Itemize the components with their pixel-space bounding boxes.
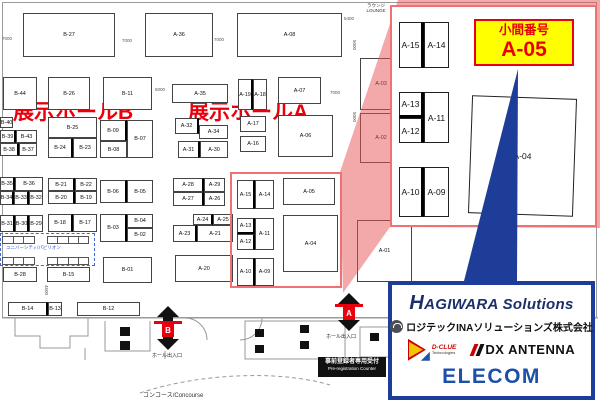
pre-registration-label-en: Pre-registration Counter bbox=[318, 366, 386, 372]
booth-a-27: A-27 bbox=[173, 192, 204, 206]
booth-label: B-34 bbox=[1, 195, 13, 201]
booth-label: A-03 bbox=[375, 81, 387, 87]
booth-label: B-04 bbox=[134, 218, 146, 224]
booth-label: B-13 bbox=[49, 306, 61, 312]
booth-b-30: B-30 bbox=[15, 215, 29, 232]
logitec-logo: ロジテックINAソリューションズ株式会社 bbox=[390, 319, 593, 334]
pavilion-mini-booth-cell bbox=[57, 237, 67, 243]
booth-label: A-28 bbox=[182, 182, 194, 188]
booth-a-34: A-34 bbox=[199, 125, 228, 139]
booth-label: A-24 bbox=[197, 217, 209, 223]
booth-a-31: A-31 bbox=[178, 141, 200, 158]
booth-b-31: B-31 bbox=[0, 215, 15, 232]
booth-label: B-22 bbox=[80, 182, 92, 188]
booth-b-12: B-12 bbox=[77, 302, 140, 316]
booth-a-20: A-20 bbox=[175, 255, 233, 282]
exhibition-floor-map: 展示ホールB 展示ホールA ラウンジ LOUNGE 事前登録者専用受付 Pre-… bbox=[0, 0, 600, 405]
booth-b-07: B-07 bbox=[127, 120, 153, 158]
pre-registration-counter: 事前登録者専用受付 Pre-registration Counter bbox=[318, 357, 386, 377]
booth-label: B-36 bbox=[23, 181, 35, 187]
entrance-b-badge: B bbox=[162, 324, 174, 337]
booth-b-23: B-23 bbox=[73, 138, 97, 158]
pavilion-mini-booth-cell bbox=[78, 258, 88, 264]
dx-antenna-logo: DX ANTENNA bbox=[472, 342, 575, 357]
booth-label: B-31 bbox=[1, 221, 13, 227]
pavilion-mini-booth-cell bbox=[68, 258, 78, 264]
booth-label: B-26 bbox=[63, 91, 75, 97]
elecom-logo: ELECOM bbox=[442, 365, 541, 389]
booth-b-38: B-38 bbox=[0, 143, 19, 156]
pavilion-mini-booths bbox=[47, 257, 89, 265]
booth-b-43: B-43 bbox=[16, 130, 37, 143]
booth-b-03: B-03 bbox=[100, 214, 127, 242]
booth-label: A-25 bbox=[217, 217, 229, 223]
dclue-logo-text: D-CLUE Technologies bbox=[432, 344, 457, 356]
booth-label: B-35 bbox=[1, 181, 13, 187]
booth-b-34: B-34 bbox=[0, 191, 14, 205]
booth-b-21: B-21 bbox=[48, 178, 75, 191]
booth-b-25: B-25 bbox=[48, 117, 97, 138]
booth-b-06: B-06 bbox=[100, 180, 127, 203]
booth-label: B-07 bbox=[134, 136, 146, 142]
booth-a-07: A-07 bbox=[278, 77, 321, 104]
booth-b-11: B-11 bbox=[103, 77, 152, 110]
dimension-label: 7000 bbox=[214, 37, 224, 42]
booth-a-26: A-26 bbox=[204, 192, 225, 206]
booth-b-17: B-17 bbox=[73, 214, 97, 232]
booth-b-33: B-33 bbox=[14, 191, 29, 205]
university-pavilion-label: ユニバーシティ/パビリオン bbox=[6, 245, 61, 251]
booth-b-22: B-22 bbox=[75, 178, 97, 191]
booth-b-04: B-04 bbox=[127, 214, 153, 228]
booth-label: A-02 bbox=[375, 135, 387, 141]
pavilion-mini-booth-cell bbox=[57, 258, 67, 264]
dimension-label: 5000 bbox=[352, 40, 357, 50]
booth-b-29: B-29 bbox=[29, 215, 43, 232]
logitec-logo-icon bbox=[390, 320, 403, 333]
booth-label: B-20 bbox=[55, 195, 67, 201]
booth-b-32: B-32 bbox=[29, 191, 43, 205]
entrance-a-badge: A bbox=[343, 307, 355, 320]
booth-label: B-30 bbox=[16, 221, 28, 227]
booth-label: B-25 bbox=[67, 125, 79, 131]
booth-b-26: B-26 bbox=[48, 77, 90, 110]
booth-b-09: B-09 bbox=[100, 120, 127, 141]
pavilion-mini-booth-cell bbox=[3, 258, 13, 264]
booth-label: A-31 bbox=[183, 147, 195, 153]
sponsor-logo-panel: HAGIWARA Solutions ロジテックINAソリューションズ株式会社 … bbox=[388, 281, 595, 400]
hagiwara-solutions-logo: HAGIWARA Solutions bbox=[409, 292, 573, 315]
booth-label: A-23 bbox=[179, 231, 191, 237]
booth-label: B-01 bbox=[122, 267, 134, 273]
logitec-logo-text: ロジテックINAソリューションズ株式会社 bbox=[406, 319, 593, 334]
booth-label: B-38 bbox=[3, 147, 15, 153]
dx-antenna-logo-text: DX ANTENNA bbox=[485, 342, 575, 357]
dimension-label: 5000 bbox=[352, 112, 357, 122]
booth-b-28: B-28 bbox=[3, 267, 37, 282]
booth-label: A-34 bbox=[208, 129, 220, 135]
booth-label: B-09 bbox=[107, 128, 119, 134]
booth-label: A-07 bbox=[294, 88, 306, 94]
booth-label: B-18 bbox=[54, 220, 66, 226]
dimension-label: 7000 bbox=[2, 36, 12, 41]
booth-label: A-19 bbox=[239, 92, 251, 98]
dclue-logo: D-CLUE Technologies bbox=[408, 339, 457, 361]
pavilion-mini-booth-cell bbox=[13, 237, 24, 243]
booth-label: A-16 bbox=[247, 141, 259, 147]
logo-row: D-CLUE Technologies DX ANTENNA bbox=[408, 339, 575, 361]
dx-antenna-logo-icon bbox=[470, 344, 486, 356]
booth-a-06: A-06 bbox=[278, 115, 333, 157]
booth-label: B-33 bbox=[15, 195, 27, 201]
pavilion-mini-booth-cell bbox=[23, 258, 34, 264]
booth-a-24: A-24 bbox=[193, 214, 213, 225]
booth-label: A-17 bbox=[247, 121, 259, 127]
booth-label: B-37 bbox=[22, 147, 34, 153]
booth-b-15: B-15 bbox=[47, 267, 90, 282]
booth-b-13: B-13 bbox=[48, 302, 62, 316]
booth-label: A-29 bbox=[209, 182, 221, 188]
booth-b-19: B-19 bbox=[75, 191, 97, 204]
booth-label: B-28 bbox=[14, 272, 26, 278]
booth-label: B-05 bbox=[134, 189, 146, 195]
booth-label: A-35 bbox=[194, 91, 206, 97]
booth-label: B-12 bbox=[103, 306, 115, 312]
dimension-label: 7000 bbox=[330, 90, 340, 95]
booth-label: B-29 bbox=[30, 221, 42, 227]
booth-label: B-21 bbox=[55, 182, 67, 188]
booth-label: B-03 bbox=[107, 225, 119, 231]
booth-label: A-32 bbox=[181, 123, 193, 129]
dimension-label: 5400 bbox=[344, 16, 354, 21]
booth-label: B-17 bbox=[79, 220, 91, 226]
booth-a-36: A-36 bbox=[145, 13, 213, 57]
booth-label: B-11 bbox=[122, 91, 133, 97]
booth-label: B-44 bbox=[14, 91, 26, 97]
pavilion-mini-booths bbox=[47, 236, 89, 244]
pavilion-mini-booths bbox=[2, 257, 35, 265]
pavilion-mini-booth-cell bbox=[68, 237, 78, 243]
booth-a-23: A-23 bbox=[173, 225, 197, 242]
booth-label: A-18 bbox=[254, 92, 266, 98]
booth-label: B-14 bbox=[22, 306, 34, 312]
pavilion-mini-booth-cell bbox=[78, 237, 88, 243]
booth-b-01: B-01 bbox=[103, 257, 152, 283]
booth-b-35: B-35 bbox=[0, 177, 15, 191]
booth-label: B-23 bbox=[79, 145, 91, 151]
hall-gate-label: ホール出入口 bbox=[326, 333, 356, 340]
booth-label: B-15 bbox=[63, 272, 75, 278]
booth-b-08: B-08 bbox=[100, 141, 127, 158]
dimension-label: 4500 bbox=[44, 285, 49, 295]
pavilion-mini-booth-cell bbox=[48, 258, 57, 264]
booth-b-24: B-24 bbox=[48, 138, 73, 158]
zoom-source-outline bbox=[230, 172, 342, 288]
dimension-label: 7000 bbox=[122, 38, 132, 43]
booth-a-17: A-17 bbox=[240, 116, 266, 132]
booth-label: A-36 bbox=[173, 32, 185, 38]
booth-b-18: B-18 bbox=[48, 214, 73, 232]
booth-label: A-27 bbox=[182, 196, 194, 202]
booth-a-35: A-35 bbox=[172, 84, 228, 103]
lounge-label-en: LOUNGE bbox=[358, 8, 394, 13]
booth-label: A-01 bbox=[379, 248, 391, 254]
booth-b-39: B-39 bbox=[0, 130, 16, 143]
lounge-label: ラウンジ LOUNGE bbox=[358, 3, 394, 14]
pavilion-mini-booths bbox=[2, 236, 35, 244]
booth-label: B-43 bbox=[21, 134, 33, 140]
booth-b-37: B-37 bbox=[19, 143, 37, 156]
hall-gate-label: ホール出入口 bbox=[152, 352, 182, 359]
booth-label: B-32 bbox=[30, 195, 42, 201]
booth-a-16: A-16 bbox=[240, 136, 266, 152]
booth-a-29: A-29 bbox=[204, 178, 225, 192]
booth-b-14: B-14 bbox=[8, 302, 48, 316]
dimension-label: 5000 bbox=[155, 87, 165, 92]
booth-a-19: A-19 bbox=[238, 79, 253, 110]
booth-a-18: A-18 bbox=[253, 79, 267, 110]
booth-label: A-06 bbox=[300, 133, 312, 139]
booth-b-44: B-44 bbox=[3, 77, 37, 110]
booth-label: A-26 bbox=[209, 196, 221, 202]
booth-label: A-30 bbox=[208, 147, 220, 153]
dclue-sub: Technologies bbox=[432, 351, 457, 355]
booth-label: B-02 bbox=[134, 232, 146, 238]
booth-a-21: A-21 bbox=[197, 225, 233, 242]
booth-label: B-06 bbox=[107, 189, 119, 195]
booth-label: B-39 bbox=[2, 134, 14, 140]
concourse-label: コンコース/Concourse bbox=[143, 390, 203, 399]
booth-label: B-40 bbox=[1, 120, 13, 126]
pre-registration-label-jp: 事前登録者専用受付 bbox=[318, 358, 386, 366]
booth-a-32: A-32 bbox=[175, 118, 199, 134]
pavilion-mini-booth-cell bbox=[3, 237, 13, 243]
dclue-logo-icon bbox=[408, 339, 430, 361]
booth-a-30: A-30 bbox=[200, 141, 228, 158]
booth-b-40: B-40 bbox=[0, 117, 13, 128]
booth-b-27: B-27 bbox=[23, 13, 115, 57]
booth-b-02: B-02 bbox=[127, 228, 153, 242]
booth-b-36: B-36 bbox=[15, 177, 43, 191]
pavilion-mini-booth-cell bbox=[23, 237, 34, 243]
booth-b-05: B-05 bbox=[127, 180, 153, 203]
booth-b-20: B-20 bbox=[48, 191, 75, 204]
booth-label: A-08 bbox=[284, 32, 296, 38]
booth-label: B-24 bbox=[54, 145, 66, 151]
booth-a-28: A-28 bbox=[173, 178, 204, 192]
pavilion-mini-booth-cell bbox=[48, 237, 57, 243]
zoom-inset bbox=[390, 5, 597, 227]
booth-label: A-21 bbox=[209, 231, 221, 237]
booth-a-01: A-01 bbox=[357, 220, 412, 282]
booth-a-08: A-08 bbox=[237, 13, 342, 57]
booth-label: B-19 bbox=[80, 195, 92, 201]
booth-label: A-20 bbox=[198, 266, 210, 272]
booth-label: B-27 bbox=[63, 32, 75, 38]
pavilion-mini-booth-cell bbox=[13, 258, 24, 264]
booth-label: B-08 bbox=[108, 147, 120, 153]
